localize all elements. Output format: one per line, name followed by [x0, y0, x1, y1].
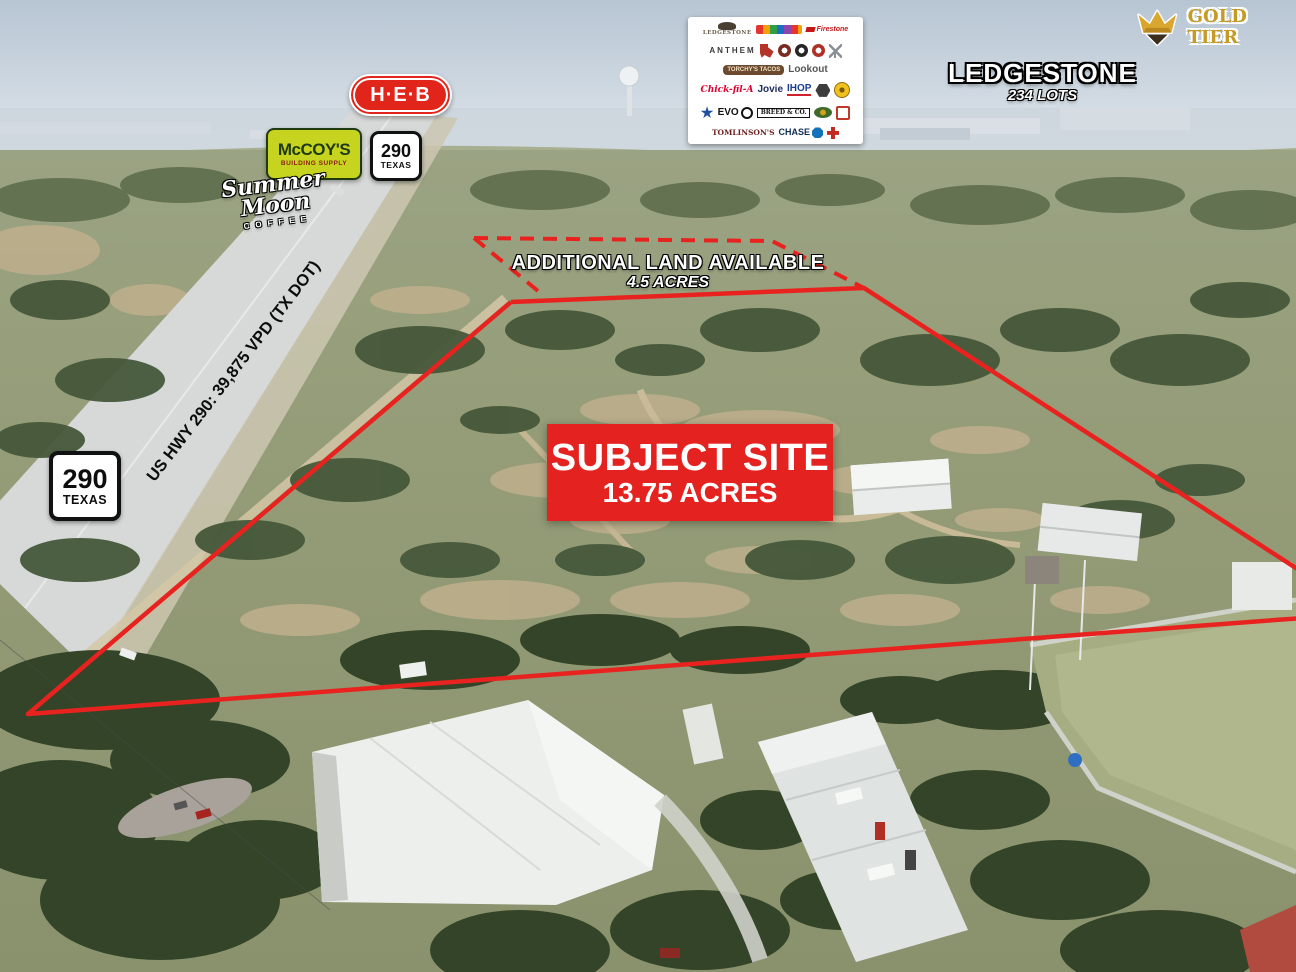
route-290-shield-small: 290 TEXAS — [370, 131, 422, 181]
subject-site-title: SUBJECT SITE — [551, 439, 829, 477]
star-emblem-logo — [701, 106, 714, 119]
golds-gym-logo — [834, 82, 850, 98]
round-emblem-red-logo — [812, 44, 825, 57]
lookout-logo: Lookout — [788, 65, 827, 75]
firestone-logo: Firestone — [806, 26, 849, 33]
ledgestone-logo: LEDGESTONE — [703, 22, 752, 37]
ledgestone-title: LEDGESTONE — [940, 58, 1145, 89]
chase-logo: CHASE — [779, 127, 824, 138]
mccoys-name: McCOY'S — [278, 141, 350, 158]
ihop-logo: IHOP — [787, 84, 811, 96]
chick-fil-a-logo: Chick-fil-A — [701, 86, 754, 95]
retailer-logo-panel: LEDGESTONE Firestone ANTHEM TORCHY'S TAC… — [688, 17, 863, 144]
additional-land-label: ADDITIONAL LAND AVAILABLE 4.5 ACRES — [508, 252, 828, 292]
route-290-shield-large: 290 TEXAS — [49, 451, 121, 521]
gold-tier-badge: GOLD TIER — [1133, 6, 1296, 48]
heb-logo: H·E·B — [349, 74, 452, 116]
ledgestone-development-label: LEDGESTONE 234 LOTS — [940, 58, 1145, 104]
round-emblem-black-logo — [795, 44, 808, 57]
route-number: 290 — [381, 142, 411, 160]
texas-badge-logo — [760, 44, 774, 58]
route-number: 290 — [62, 466, 107, 493]
subject-site-callout: SUBJECT SITE 13.75 ACRES — [547, 424, 833, 521]
torchys-tacos-logo: TORCHY'S TACOS — [723, 65, 784, 75]
heb-label: H·E·B — [370, 84, 431, 107]
round-emblem-maroon-logo — [778, 44, 791, 57]
jovie-logo: Jovie — [757, 85, 783, 95]
red-badge-logo — [836, 106, 850, 120]
evo-logo: EVO — [718, 107, 753, 119]
additional-land-acreage: 4.5 ACRES — [508, 274, 828, 292]
buffalo-icon — [718, 22, 736, 30]
gold-tier-label: GOLD TIER — [1188, 6, 1296, 48]
crown-icon — [1133, 6, 1182, 48]
additional-land-title: ADDITIONAL LAND AVAILABLE — [508, 252, 828, 275]
chase-octagon-icon — [812, 127, 823, 138]
colorful-letters-logo — [756, 25, 802, 34]
circle-icon — [741, 107, 753, 119]
medical-cross-logo — [827, 127, 839, 139]
hexagon-emblem-logo — [815, 84, 830, 97]
ledgestone-lot-count: 234 LOTS — [940, 87, 1145, 104]
windmill-logo — [829, 44, 842, 58]
tomlinsons-logo: TOMLINSON'S — [712, 129, 775, 137]
route-state: TEXAS — [63, 493, 107, 507]
anthem-apartment-homes-logo: ANTHEM — [709, 47, 755, 55]
route-state: TEXAS — [381, 160, 412, 170]
breed-and-co-logo: BREED & CO. — [757, 108, 811, 118]
subject-site-acreage: 13.75 ACRES — [603, 479, 778, 507]
green-gold-badge-logo — [814, 107, 832, 118]
flag-icon — [805, 27, 815, 32]
aerial-marketing-flyer: LEDGESTONE Firestone ANTHEM TORCHY'S TAC… — [0, 0, 1296, 972]
